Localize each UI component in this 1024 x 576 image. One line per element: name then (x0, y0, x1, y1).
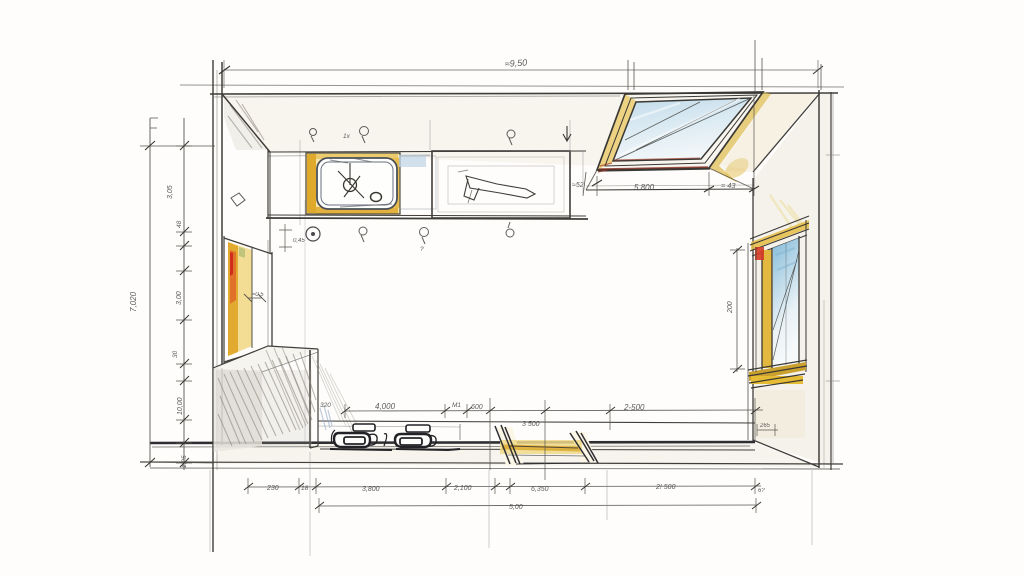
svg-text:≈ 43: ≈ 43 (721, 181, 736, 190)
svg-text:7,020: 7,020 (129, 291, 138, 312)
svg-text:2-500: 2-500 (623, 403, 645, 412)
svg-text:10,00: 10,00 (177, 397, 184, 415)
svg-text:265: 265 (759, 423, 771, 429)
svg-text:320: 320 (320, 402, 331, 409)
svg-text:1,25: 1,25 (181, 455, 188, 468)
svg-text:2! 500: 2! 500 (655, 484, 676, 491)
svg-text:3 500: 3 500 (522, 421, 540, 428)
svg-text:230: 230 (266, 485, 279, 492)
svg-text:?: ? (420, 246, 424, 253)
svg-text:≈9,50: ≈9,50 (504, 57, 527, 69)
svg-text:5 800: 5 800 (634, 183, 655, 192)
svg-text:≈52: ≈52 (572, 182, 584, 189)
svg-text:3,05: 3,05 (167, 185, 174, 199)
svg-text:0,45: 0,45 (293, 238, 305, 244)
svg-text:2,100: 2,100 (453, 485, 472, 492)
svg-text:1x: 1x (343, 133, 351, 140)
svg-text:18: 18 (301, 485, 309, 492)
svg-text:5,00: 5,00 (509, 504, 523, 511)
svg-text:3,800: 3,800 (362, 486, 380, 493)
svg-text:6?: 6? (758, 488, 765, 494)
svg-text:≈0,5: ≈0,5 (252, 292, 264, 298)
svg-text:M1: M1 (452, 402, 461, 409)
svg-text:48: 48 (176, 220, 183, 228)
svg-text:3,00: 3,00 (176, 291, 183, 305)
svg-text:600: 600 (471, 404, 483, 411)
svg-text:4,000: 4,000 (375, 402, 396, 411)
svg-text:30: 30 (172, 350, 179, 358)
svg-text:200: 200 (727, 301, 734, 314)
svg-text:6,350: 6,350 (531, 486, 549, 493)
